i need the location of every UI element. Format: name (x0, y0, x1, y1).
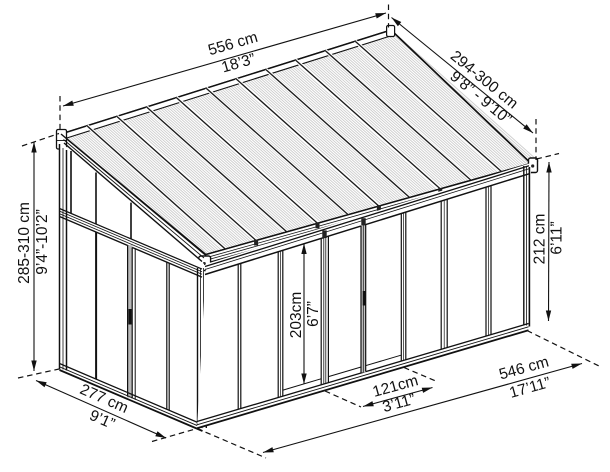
svg-text:212 cm: 212 cm (532, 214, 549, 265)
svg-text:6’7”: 6’7” (305, 301, 322, 327)
svg-text:9’4”-10’2”: 9’4”-10’2” (34, 209, 51, 274)
svg-text:285-310 cm: 285-310 cm (16, 202, 33, 284)
svg-text:6’11”: 6’11” (549, 221, 566, 254)
svg-text:203cm: 203cm (288, 292, 305, 339)
